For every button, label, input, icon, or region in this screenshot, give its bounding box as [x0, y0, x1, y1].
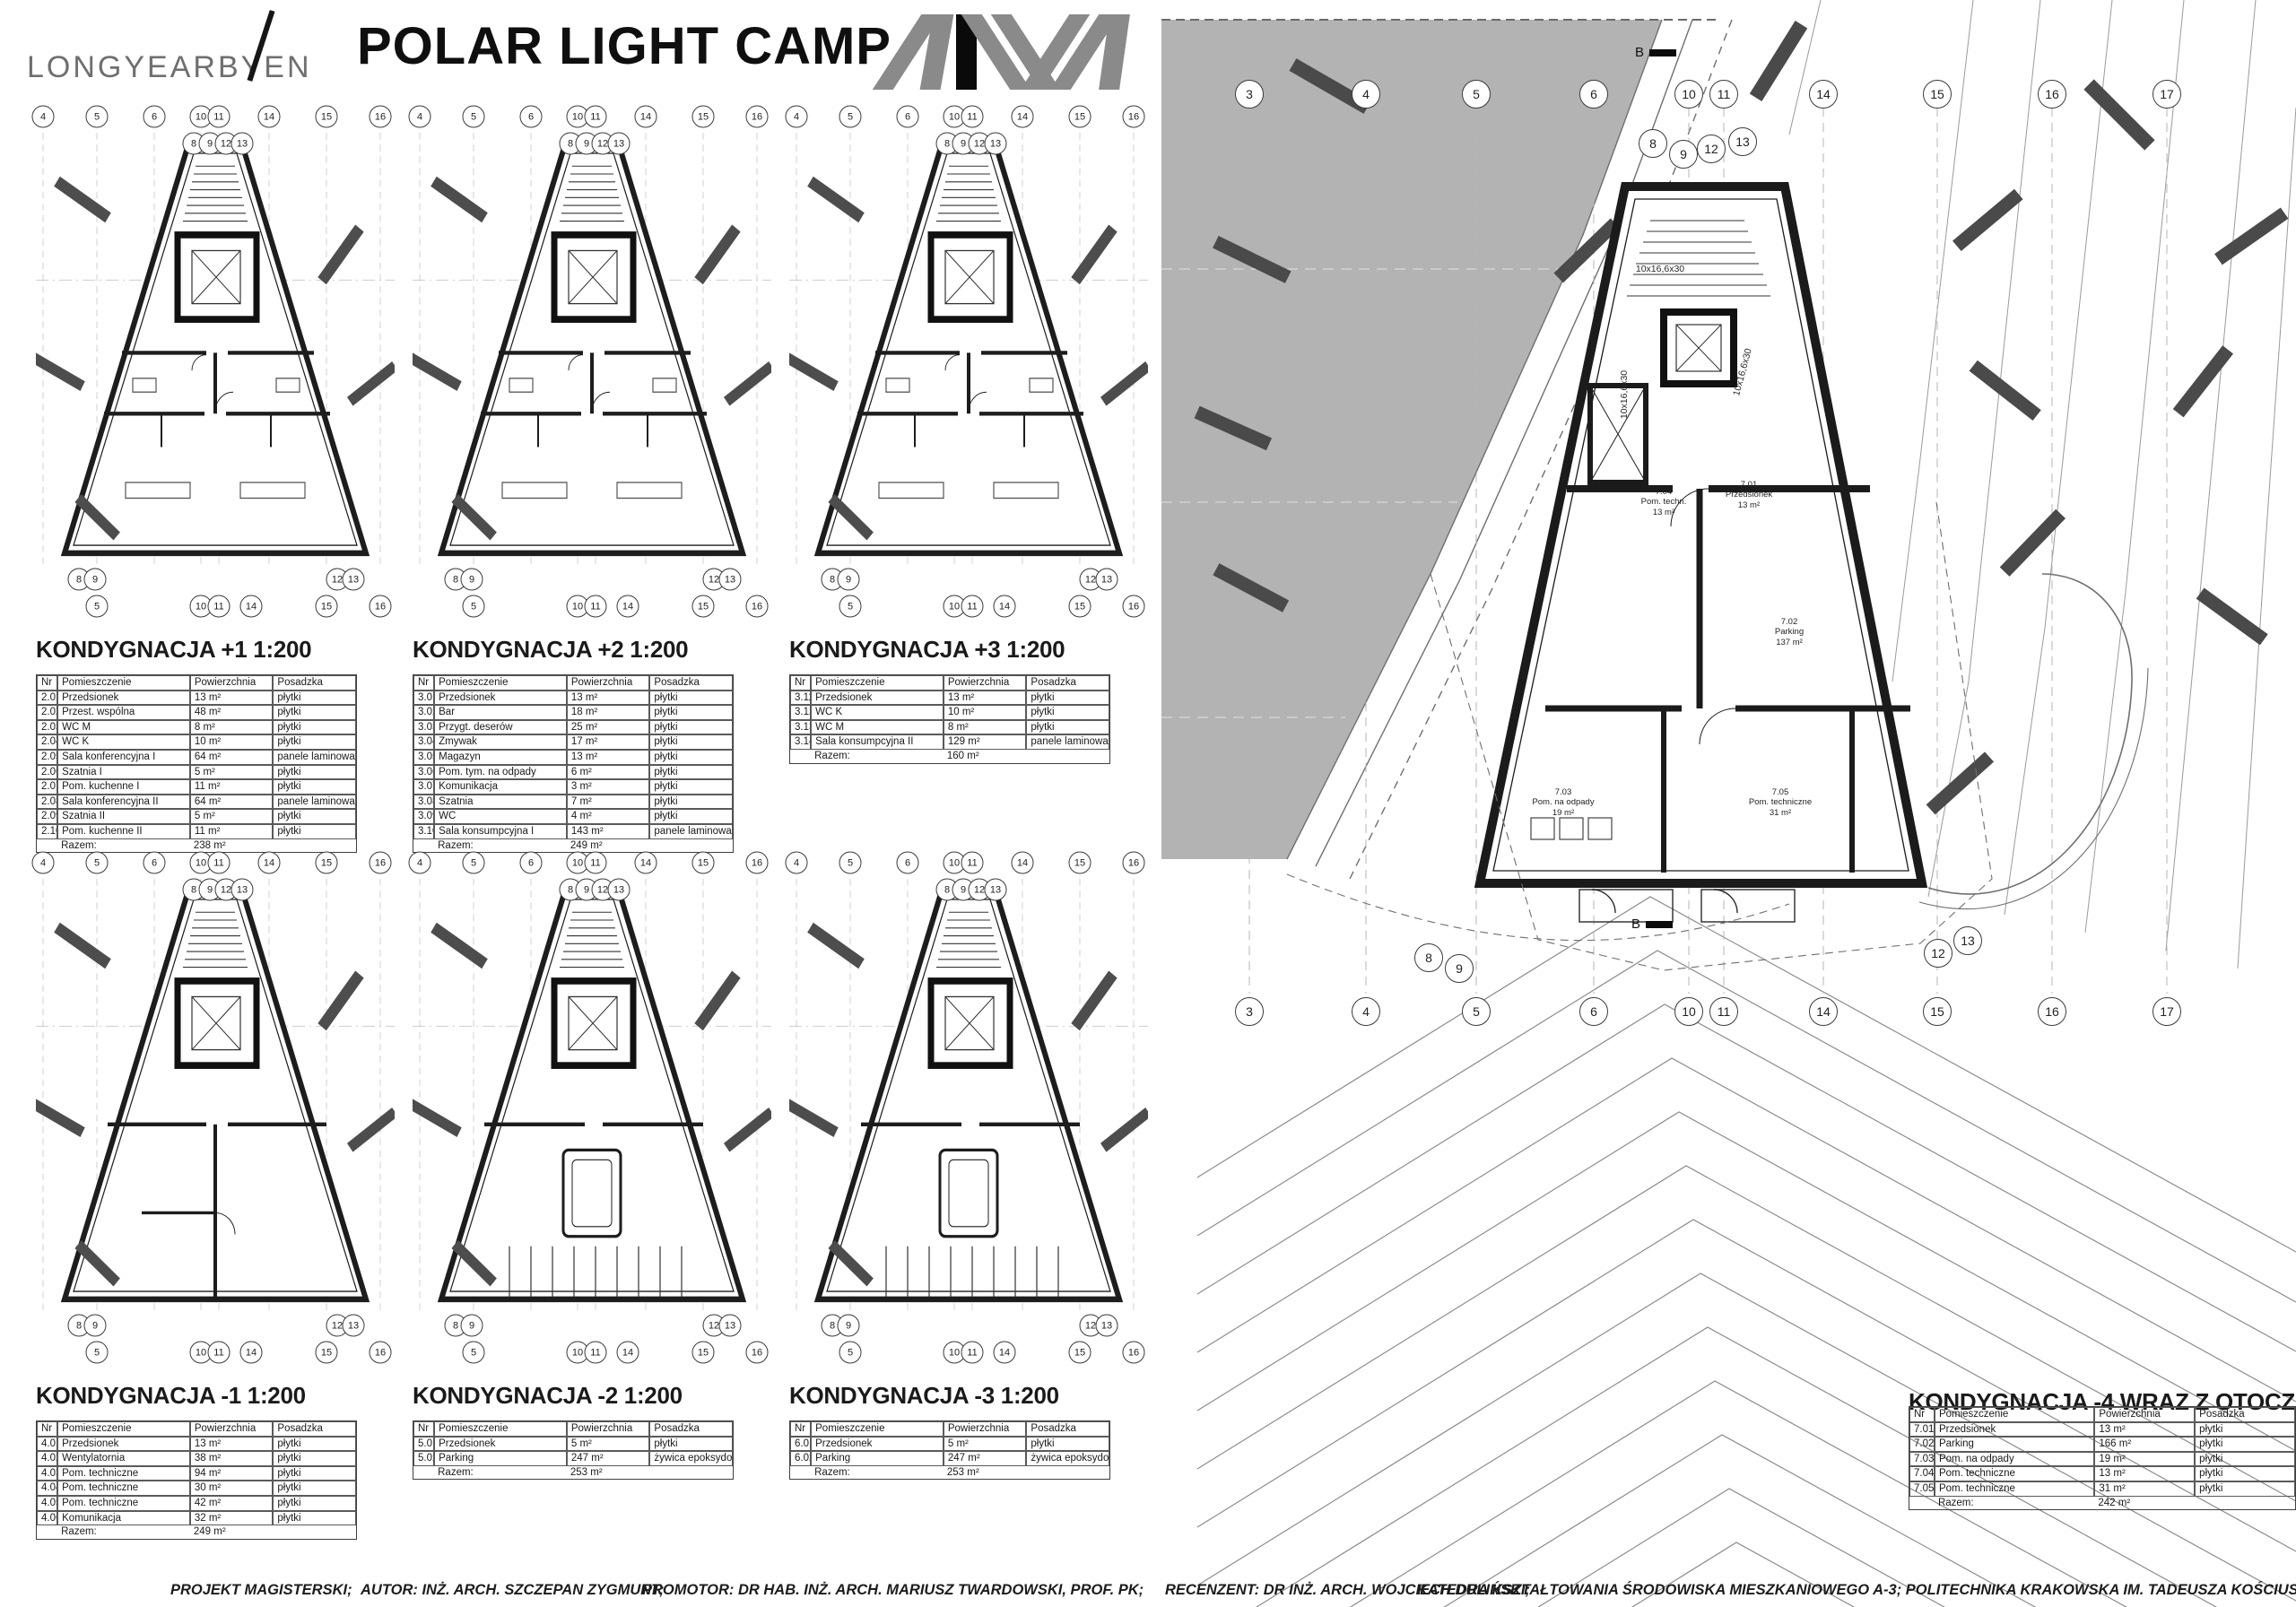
- table-cell: [273, 839, 356, 853]
- grid-bubble: 16: [2038, 80, 2066, 109]
- grid-bubble: 13: [231, 879, 254, 901]
- table-header-row: NrPomieszczeniePowierzchniaPosadzka: [413, 675, 733, 691]
- table-cell: [790, 750, 811, 763]
- grid-bubble: 9: [461, 1315, 483, 1337]
- grid-bubble: 11: [961, 1342, 984, 1364]
- grid-bubble: 5: [463, 852, 485, 874]
- grid-bubble-row: 891213: [36, 569, 395, 590]
- column-header: Pomieszczenie: [434, 1421, 567, 1437]
- table-cell: WC M: [811, 720, 944, 735]
- table-row: 7.04Pom. techniczne13 m²płytki: [1909, 1466, 2295, 1481]
- grid-bubble: 11: [208, 1342, 230, 1364]
- table-row: 4.01Przedsionek13 m²płytki: [37, 1437, 356, 1452]
- table-row: 3.05Magazyn13 m²płytki: [413, 750, 733, 765]
- grid-bubble: 16: [370, 106, 392, 128]
- grid-bubble-row: 4561011141516: [413, 852, 771, 873]
- grid-bubble: 15: [316, 595, 338, 618]
- table-cell: 13 m²: [2094, 1466, 2195, 1481]
- table-cell: 2.07: [37, 779, 57, 795]
- table-cell: Komunikacja: [434, 779, 567, 795]
- column-header: Powierzchnia: [190, 1421, 274, 1437]
- grid-bubble: 14: [1809, 997, 1838, 1026]
- table-cell: 13 m²: [567, 691, 650, 706]
- credit-institute: KATEDRA KSZTAŁTOWANIA ŚRODOWISKA MIESZKA…: [1417, 1582, 2296, 1599]
- grid-bubble: 14: [1809, 80, 1838, 109]
- table-total-row: Razem:249 m²: [37, 1525, 356, 1539]
- table-cell: 4 m²: [567, 809, 650, 824]
- table-cell: Przedsionek: [811, 1437, 944, 1452]
- section-letter: B: [1635, 45, 1644, 60]
- grid-bubble: 4: [1352, 997, 1380, 1026]
- grid-bubble: 4: [409, 852, 431, 874]
- table-cell: Przest. wspólna: [57, 705, 190, 720]
- table-cell: [1026, 750, 1109, 763]
- grid-bubble: 5: [463, 1342, 485, 1364]
- room-table: NrPomieszczeniePowierzchniaPosadzka5.01P…: [413, 1420, 734, 1480]
- grid-bubble: 16: [2038, 997, 2066, 1026]
- grid-bubble: 16: [370, 595, 392, 618]
- grid-bubble: 9: [1445, 954, 1474, 983]
- room-label-line: 13 m²: [1726, 500, 1772, 510]
- grid-bubble: 11: [585, 595, 607, 618]
- grid-bubble: 5: [839, 595, 862, 618]
- grid-bubble: 14: [617, 595, 639, 618]
- room-table: NrPomieszczeniePowierzchniaPosadzka3.11P…: [789, 674, 1110, 764]
- grid-bubble-row: 51011141516: [789, 595, 1148, 617]
- table-cell: panele laminowane: [1026, 734, 1109, 750]
- table-cell: 13 m²: [190, 1437, 274, 1452]
- total-label: Razem:: [434, 1466, 567, 1480]
- table-row: 2.10Pom. kuchenne II11 m²płytki: [37, 824, 356, 839]
- table-cell: płytki: [649, 720, 733, 735]
- table-cell: 30 m²: [190, 1481, 274, 1496]
- table-cell: płytki: [273, 765, 356, 780]
- table-row: 6.01Przedsionek5 m²płytki: [790, 1437, 1109, 1452]
- column-header: Pomieszczenie: [57, 1421, 190, 1437]
- grid-bubble: 11: [208, 595, 230, 618]
- table-cell: płytki: [273, 1451, 356, 1466]
- table-row: 3.11Przedsionek13 m²płytki: [790, 691, 1109, 706]
- grid-bubble: 6: [897, 852, 919, 874]
- table-cell: [413, 839, 434, 853]
- grid-bubble: 6: [1579, 80, 1608, 109]
- table-row: 3.09WC4 m²płytki: [413, 809, 733, 824]
- table-cell: 8 m²: [190, 720, 274, 735]
- table-cell: Przygt. deserów: [434, 720, 567, 735]
- table-cell: Sala konferencyjna I: [57, 750, 190, 765]
- room-label-line: 7.01: [1726, 480, 1772, 490]
- table-cell: płytki: [649, 795, 733, 810]
- table-row: 3.01Przedsionek13 m²płytki: [413, 691, 733, 706]
- grid-bubble: 14: [994, 1342, 1016, 1364]
- table-cell: 38 m²: [190, 1451, 274, 1466]
- grid-bubble: 14: [1012, 106, 1034, 128]
- table-row: 4.05Pom. techniczne42 m²płytki: [37, 1496, 356, 1511]
- table-row: 4.04Pom. techniczne30 m²płytki: [37, 1481, 356, 1496]
- table-cell: 11 m²: [190, 779, 274, 795]
- table-cell: WC: [434, 809, 567, 824]
- grid-bubble: 15: [692, 852, 715, 874]
- table-row: 3.12WC K10 m²płytki: [790, 705, 1109, 720]
- table-cell: 5.01: [413, 1437, 434, 1452]
- floor-label: KONDYGNACJA +3 1:200: [789, 636, 1148, 664]
- table-cell: [37, 839, 57, 853]
- floor-label: KONDYGNACJA -2 1:200: [413, 1382, 771, 1410]
- grid-bubble: 16: [746, 1342, 769, 1364]
- grid-bubble: 12: [1697, 135, 1726, 163]
- room-table: NrPomieszczeniePowierzchniaPosadzka4.01P…: [36, 1420, 357, 1540]
- grid-bubble: 5: [86, 595, 109, 618]
- panel-floor-minus2: 4561011141516 891213 891213 51011141516 …: [413, 852, 771, 1480]
- table-row: 7.05Pom. techniczne31 m²płytki: [1909, 1481, 2295, 1497]
- table-cell: 64 m²: [190, 795, 274, 810]
- table-row: 6.02Parking247 m²żywica epoksydowa: [790, 1451, 1109, 1466]
- total-value: 238 m²: [190, 839, 274, 853]
- grid-bubble: 15: [1069, 106, 1091, 128]
- table-row: 3.13WC M8 m²płytki: [790, 720, 1109, 735]
- table-cell: 3 m²: [567, 779, 650, 795]
- table-cell: płytki: [273, 1466, 356, 1481]
- grid-bubble: 15: [316, 852, 338, 874]
- table-cell: Pom. kuchenne II: [57, 824, 190, 839]
- column-header: Powierzchnia: [567, 675, 650, 691]
- total-value: 242 m²: [2094, 1497, 2195, 1510]
- table-row: 3.06Pom. tym. na odpady6 m²płytki: [413, 765, 733, 780]
- table-cell: Bar: [434, 705, 567, 720]
- table-cell: płytki: [273, 1437, 356, 1452]
- table-row: 2.06Szatnia I5 m²płytki: [37, 765, 356, 780]
- grid-bubble: 15: [692, 1342, 715, 1364]
- table-cell: 2.02: [37, 705, 57, 720]
- table-cell: 64 m²: [190, 750, 274, 765]
- grid-bubble: 11: [961, 595, 984, 618]
- grid-bubble: 4: [786, 852, 808, 874]
- floor-plan-drawing: [789, 879, 1148, 1311]
- grid-bubble: 14: [240, 595, 263, 618]
- credit-project: PROJEKT MAGISTERSKI;: [170, 1582, 352, 1599]
- table-cell: Komunikacja: [57, 1511, 190, 1526]
- table-cell: 17 m²: [567, 734, 650, 750]
- grid-bubble: 9: [838, 1315, 860, 1337]
- section-tick: [1649, 49, 1676, 56]
- room-label-line: 19 m²: [1532, 808, 1594, 818]
- grid-bubble: 16: [1123, 106, 1145, 128]
- stair-dimension-notes: 10x16,6x3010x16,6x3010x16,6x30: [1161, 0, 2296, 1607]
- table-cell: 5 m²: [944, 1437, 1027, 1452]
- column-header: Powierzchnia: [944, 675, 1027, 691]
- grid-bubble-row: 51011141516: [413, 595, 771, 617]
- column-header: Posadzka: [649, 675, 733, 691]
- table-cell: Przedsionek: [434, 691, 567, 706]
- grid-bubble: 11: [961, 106, 984, 128]
- table-cell: płytki: [649, 765, 733, 780]
- plan-area: 4561011141516 891213 891213 51011141516: [413, 106, 771, 621]
- table-cell: Pom. techniczne: [57, 1481, 190, 1496]
- floor-plan-drawing: [789, 133, 1148, 565]
- table-cell: panele laminowane: [649, 824, 733, 839]
- grid-bubble: 13: [719, 569, 742, 591]
- table-cell: 3.10: [413, 824, 434, 839]
- site-plan-panel: 3456101114151617 891213 3456101114151617…: [1161, 0, 2296, 1607]
- grid-bubble: 13: [985, 133, 1007, 155]
- grid-bubble: 5: [86, 106, 109, 128]
- plan-area: 4561011141516 891213 891213 51011141516: [36, 106, 395, 621]
- total-value: 253 m²: [944, 1466, 1027, 1480]
- table-cell: 5 m²: [190, 809, 274, 824]
- grid-bubble-row: 4561011141516: [413, 106, 771, 127]
- plan-area: 4561011141516 891213 891213 51011141516: [413, 852, 771, 1368]
- table-row: 7.03Pom. na odpady19 m²płytki: [1909, 1452, 2295, 1467]
- table-cell: żywica epoksydowa: [649, 1451, 733, 1466]
- grid-bubble: 11: [585, 852, 607, 874]
- site-room-table: NrPomieszczeniePowierzchniaPosadzka7.01P…: [1909, 1406, 2296, 1510]
- table-cell: 11 m²: [190, 824, 274, 839]
- section-mark-b-top: B: [1635, 45, 1676, 60]
- table-row: 4.06Komunikacja32 m²płytki: [37, 1511, 356, 1526]
- grid-bubble: 9: [84, 1315, 107, 1337]
- table-cell: 2.10: [37, 824, 57, 839]
- table-cell: Sala konferencyjna II: [57, 795, 190, 810]
- grid-bubble: 16: [1123, 1342, 1145, 1364]
- grid-bubble: 9: [838, 569, 860, 591]
- credit-promoter: PROMOTOR: DR HAB. INŻ. ARCH. MARIUSZ TWA…: [642, 1582, 1144, 1599]
- grid-bubble: 16: [746, 852, 769, 874]
- grid-bubble-row: 51011141516: [36, 1342, 395, 1363]
- table-cell: Szatnia: [434, 795, 567, 810]
- table-cell: 3.05: [413, 750, 434, 765]
- table-cell: 4.01: [37, 1437, 57, 1452]
- panel-floor-plus1: 4561011141516 891213 891213 51011141516 …: [36, 106, 395, 853]
- grid-bubble: 15: [1923, 997, 1952, 1026]
- table-total-row: Razem:253 m²: [790, 1466, 1109, 1480]
- grid-bubble: 15: [1069, 595, 1091, 618]
- grid-bubble-row: 4561011141516: [36, 852, 395, 873]
- room-label-line: 13 m²: [1641, 508, 1687, 517]
- table-cell: płytki: [273, 705, 356, 720]
- grid-bubble: 4: [1352, 80, 1380, 109]
- grid-bubble: 13: [343, 569, 365, 591]
- table-cell: Pom. techniczne: [57, 1466, 190, 1481]
- column-header: Powierzchnia: [2094, 1407, 2195, 1422]
- column-header: Nr: [37, 1421, 57, 1437]
- grid-bubble-row: 4561011141516: [789, 852, 1148, 873]
- grid-bubble-row: 891213: [413, 1315, 771, 1336]
- table-cell: żywica epoksydowa: [1026, 1451, 1109, 1466]
- grid-bubble: 16: [370, 852, 392, 874]
- table-total-row: Razem:253 m²: [413, 1466, 733, 1480]
- table-cell: 48 m²: [190, 705, 274, 720]
- table-cell: płytki: [2195, 1452, 2295, 1467]
- table-cell: 3.08: [413, 795, 434, 810]
- grid-bubble: 9: [461, 569, 483, 591]
- grid-bubble: 5: [86, 1342, 109, 1364]
- table-cell: płytki: [273, 1481, 356, 1496]
- table-cell: 94 m²: [190, 1466, 274, 1481]
- grid-bubble: 15: [692, 106, 715, 128]
- room-table: NrPomieszczeniePowierzchniaPosadzka6.01P…: [789, 1420, 1110, 1480]
- table-row: 2.08Sala konferencyjna II64 m²panele lam…: [37, 795, 356, 810]
- grid-bubble: 15: [692, 595, 715, 618]
- column-header: Powierzchnia: [190, 675, 274, 691]
- grid-bubble: 10: [1674, 80, 1703, 109]
- table-cell: płytki: [2195, 1422, 2295, 1438]
- grid-bubble: 11: [585, 106, 607, 128]
- floor-label: KONDYGNACJA -1 1:200: [36, 1382, 395, 1410]
- grid-bubble: 15: [1069, 1342, 1091, 1364]
- table-header-row: NrPomieszczeniePowierzchniaPosadzka: [37, 675, 356, 691]
- table-cell: Pom. techniczne: [1935, 1481, 2094, 1497]
- table-cell: [2195, 1497, 2295, 1510]
- table-cell: 2.04: [37, 734, 57, 750]
- floor-label: KONDYGNACJA +1 1:200: [36, 636, 395, 664]
- table-cell: 4.05: [37, 1496, 57, 1511]
- room-label: 7.04Pom. techn.13 m²: [1641, 487, 1687, 517]
- room-label-line: Pom. na odpady: [1532, 797, 1594, 807]
- grid-bubble: 11: [208, 106, 230, 128]
- table-cell: płytki: [273, 1511, 356, 1526]
- grid-bubble: 17: [2152, 997, 2181, 1026]
- table-cell: 3.14: [790, 734, 811, 750]
- table-cell: Sala konsumpcyjna I: [434, 824, 567, 839]
- grid-bubble: 5: [463, 106, 485, 128]
- total-label: Razem:: [57, 839, 190, 853]
- table-cell: płytki: [2195, 1437, 2295, 1452]
- table-cell: płytki: [1026, 691, 1109, 706]
- column-header: Nr: [37, 675, 57, 691]
- table-cell: 7.05: [1909, 1481, 1935, 1497]
- table-cell: Parking: [434, 1451, 567, 1466]
- total-label: Razem:: [811, 750, 944, 763]
- grid-bubble: 16: [746, 595, 769, 618]
- grid-bubble: 3: [1235, 80, 1264, 109]
- room-label-line: Przedsionek: [1726, 490, 1772, 499]
- table-cell: [649, 1466, 733, 1480]
- table-cell: 6 m²: [567, 765, 650, 780]
- table-cell: 7 m²: [567, 795, 650, 810]
- table-cell: 13 m²: [567, 750, 650, 765]
- grid-bubble: 13: [608, 133, 631, 155]
- column-header: Posadzka: [649, 1421, 733, 1437]
- grid-bubble: 6: [143, 106, 166, 128]
- table-cell: płytki: [273, 824, 356, 839]
- grid-bubble-row: 51011141516: [36, 595, 395, 617]
- column-header: Powierzchnia: [944, 1421, 1027, 1437]
- grid-bubble: 15: [1923, 80, 1952, 109]
- table-total-row: Razem:160 m²: [790, 750, 1109, 763]
- table-row: 4.03Pom. techniczne94 m²płytki: [37, 1466, 356, 1481]
- column-header: Posadzka: [273, 675, 356, 691]
- grid-bubble: 16: [370, 1342, 392, 1364]
- table-cell: płytki: [273, 809, 356, 824]
- table-row: 2.07Pom. kuchenne I11 m²płytki: [37, 779, 356, 795]
- table-cell: Pom. tym. na odpady: [434, 765, 567, 780]
- grid-bubble: 13: [1953, 926, 1982, 955]
- grid-bubble: 4: [32, 106, 55, 128]
- column-header: Nr: [790, 675, 811, 691]
- grid-bubble: 5: [1462, 997, 1491, 1026]
- table-cell: WC K: [57, 734, 190, 750]
- total-label: Razem:: [1935, 1497, 2094, 1510]
- table-cell: 3.02: [413, 705, 434, 720]
- grid-bubble-row: 4561011141516: [789, 106, 1148, 127]
- grid-bubble: 5: [839, 1342, 862, 1364]
- table-cell: płytki: [649, 734, 733, 750]
- floor-label: KONDYGNACJA +2 1:200: [413, 636, 771, 664]
- column-header: Pomieszczenie: [811, 1421, 944, 1437]
- table-row: 5.01Przedsionek5 m²płytki: [413, 1437, 733, 1452]
- room-label-line: Pom. techniczne: [1749, 797, 1812, 807]
- room-label-line: 137 m²: [1775, 638, 1804, 647]
- panel-floor-plus3: 4561011141516 891213 891213 51011141516 …: [789, 106, 1148, 764]
- table-cell: [273, 1525, 356, 1539]
- table-cell: płytki: [2195, 1466, 2295, 1481]
- room-label: 7.02Parking137 m²: [1775, 617, 1804, 647]
- table-row: 3.14Sala konsumpcyjna II129 m²panele lam…: [790, 734, 1109, 750]
- table-cell: 3.04: [413, 734, 434, 750]
- grid-bubble: 9: [84, 569, 107, 591]
- table-cell: 3.13: [790, 720, 811, 735]
- table-cell: 3.06: [413, 765, 434, 780]
- table-cell: 10 m²: [944, 705, 1027, 720]
- table-header-row: NrPomieszczeniePowierzchniaPosadzka: [413, 1421, 733, 1437]
- grid-bubble: 5: [839, 852, 862, 874]
- grid-bubble: 6: [520, 852, 543, 874]
- column-header: Pomieszczenie: [57, 675, 190, 691]
- table-cell: Sala konsumpcyjna II: [811, 734, 944, 750]
- table-row: 5.02Parking247 m²żywica epoksydowa: [413, 1451, 733, 1466]
- table-cell: 2.01: [37, 691, 57, 706]
- table-row: 3.04Zmywak17 m²płytki: [413, 734, 733, 750]
- grid-bubble: 14: [635, 106, 657, 128]
- grid-bubble: 13: [985, 879, 1007, 901]
- floor-plan-drawing: [413, 879, 771, 1311]
- grid-bubble-row: 51011141516: [789, 1342, 1148, 1363]
- grid-bubble: 5: [86, 852, 109, 874]
- grid-bubble: 11: [1709, 997, 1738, 1026]
- total-value: 253 m²: [567, 1466, 650, 1480]
- panel-floor-minus3: 4561011141516 891213 891213 51011141516 …: [789, 852, 1148, 1480]
- table-cell: Przedsionek: [434, 1437, 567, 1452]
- grid-bubble: 9: [1669, 140, 1698, 169]
- table-cell: 3.07: [413, 779, 434, 795]
- grid-bubble: 13: [719, 1315, 742, 1337]
- location-title: LONGYEARBYEN: [27, 50, 312, 85]
- grid-bubble: 13: [343, 1315, 365, 1337]
- table-cell: 6.02: [790, 1451, 811, 1466]
- grid-bubble: 4: [32, 852, 55, 874]
- table-cell: 19 m²: [2094, 1452, 2195, 1467]
- panel-floor-minus1: 4561011141516 891213 891213 51011141516 …: [36, 852, 395, 1540]
- table-cell: 4.04: [37, 1481, 57, 1496]
- table-cell: Magazyn: [434, 750, 567, 765]
- table-cell: płytki: [649, 779, 733, 795]
- table-cell: Parking: [811, 1451, 944, 1466]
- grid-bubble: 8: [1639, 129, 1667, 158]
- grid-bubble-row: 891213: [789, 569, 1148, 590]
- table-cell: Pom. techniczne: [1935, 1466, 2094, 1481]
- room-label-line: 7.03: [1532, 787, 1594, 797]
- room-label: 7.01Przedsionek13 m²: [1726, 480, 1772, 510]
- column-header: Powierzchnia: [567, 1421, 650, 1437]
- floor-plan-drawing: [36, 133, 395, 565]
- grid-bubble: 6: [1579, 997, 1608, 1026]
- table-cell: Przedsionek: [57, 691, 190, 706]
- table-cell: 3.11: [790, 691, 811, 706]
- section-tick: [1646, 921, 1673, 928]
- grid-bubble: 13: [608, 879, 631, 901]
- table-cell: płytki: [273, 720, 356, 735]
- table-cell: 42 m²: [190, 1496, 274, 1511]
